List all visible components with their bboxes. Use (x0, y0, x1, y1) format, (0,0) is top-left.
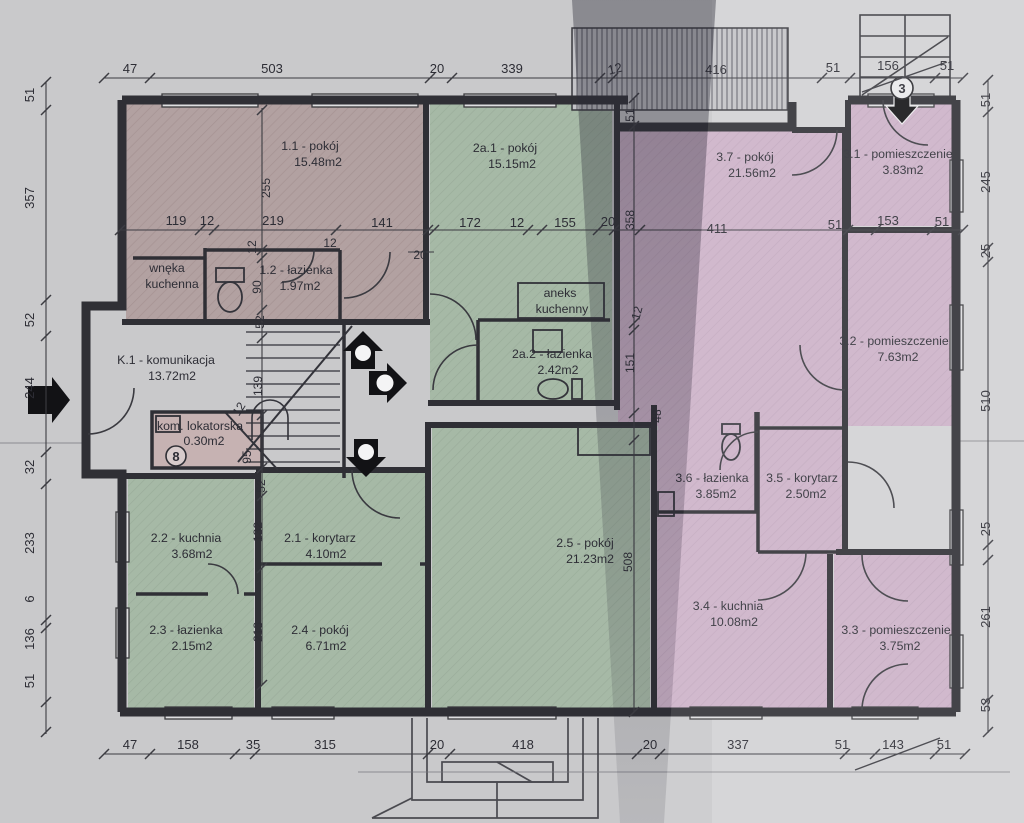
dim-label: 132 (251, 522, 265, 542)
dim-label: 141 (371, 215, 393, 230)
room-area: 0.30m2 (183, 434, 224, 448)
dim-label: 20 (413, 248, 427, 262)
dim-label: 32 (22, 460, 37, 474)
room-label: kom. lokatorska (157, 419, 243, 433)
room-label: 2.2 - kuchnia (151, 531, 222, 545)
dim-label: 136 (22, 628, 37, 650)
room-label: 2a.2 - łazienka (512, 347, 592, 361)
room-label: 2.1 - korytarz (284, 531, 356, 545)
room-label: aneks (544, 286, 577, 300)
dim-label: 233 (22, 532, 37, 554)
dim-label: 20 (430, 737, 444, 752)
room-area: 1.97m2 (279, 279, 320, 293)
room-area: 2.42m2 (537, 363, 578, 377)
dim-label: 35 (246, 737, 260, 752)
meter-number: 8 (172, 449, 179, 464)
dim-label: 339 (501, 61, 523, 76)
dim-label: 219 (262, 213, 284, 228)
room-area: 4.10m2 (305, 547, 346, 561)
dim-label: 51 (22, 674, 37, 688)
dim-label: 139 (251, 376, 265, 396)
dim-label: 51 (22, 88, 37, 102)
room-area: 3.68m2 (171, 547, 212, 561)
dim-label: 158 (177, 737, 199, 752)
room-area: kuchenna (145, 277, 198, 291)
dim-label: 12 (200, 213, 214, 228)
dim-label: 255 (259, 178, 273, 198)
room-area: 6.71m2 (305, 639, 346, 653)
dim-label: 95 (240, 450, 254, 464)
dim-label: 315 (314, 737, 336, 752)
room-area: 15.48m2 (294, 155, 342, 169)
dim-label: 52 (254, 479, 268, 493)
room-area: 13.72m2 (148, 369, 196, 383)
dim-label: 47 (123, 61, 137, 76)
dim-label: 213 (251, 622, 265, 642)
dim-label: 90 (250, 280, 264, 294)
arrow-right-dot (377, 375, 394, 392)
room-label: 2a.1 - pokój (473, 141, 537, 155)
dim-label: 52 (253, 315, 267, 329)
dim-label: 244 (22, 377, 37, 399)
dim-label: 47 (123, 737, 137, 752)
dim-label: 12 (510, 215, 524, 230)
room-label: K.1 - komunikacja (117, 353, 215, 367)
dim-label: 6 (22, 595, 37, 602)
dim-label: 155 (554, 215, 576, 230)
rooms-2-1-2-4-fill (258, 472, 428, 708)
floor-plan-svg: 8 3 (0, 0, 1024, 823)
room-label: wnęka (148, 261, 185, 275)
dim-label: 119 (166, 213, 187, 228)
dim-label: 12 (245, 240, 259, 254)
dim-label: 418 (512, 737, 534, 752)
room-label: 1.1 - pokój (281, 139, 338, 153)
dim-label: 357 (22, 187, 37, 209)
room-label: 2.4 - pokój (291, 623, 348, 637)
room-area: 2.15m2 (171, 639, 212, 653)
room-area: 15.15m2 (488, 157, 536, 171)
arrow-up-dot (355, 345, 371, 361)
room-area: kuchenny (536, 302, 589, 316)
dim-label: 503 (261, 61, 283, 76)
arrow-down-dot (358, 444, 374, 460)
floor-plan-scan: 8 3 (0, 0, 1024, 823)
dim-label: 172 (459, 215, 481, 230)
room-label: 2.3 - łazienka (149, 623, 222, 637)
room-label: 1.2 - łazienka (259, 263, 332, 277)
dim-label: 12 (323, 236, 337, 250)
dim-label: 52 (22, 313, 37, 327)
paper-fold-highlight (664, 0, 1024, 823)
dim-label: 20 (430, 61, 444, 76)
